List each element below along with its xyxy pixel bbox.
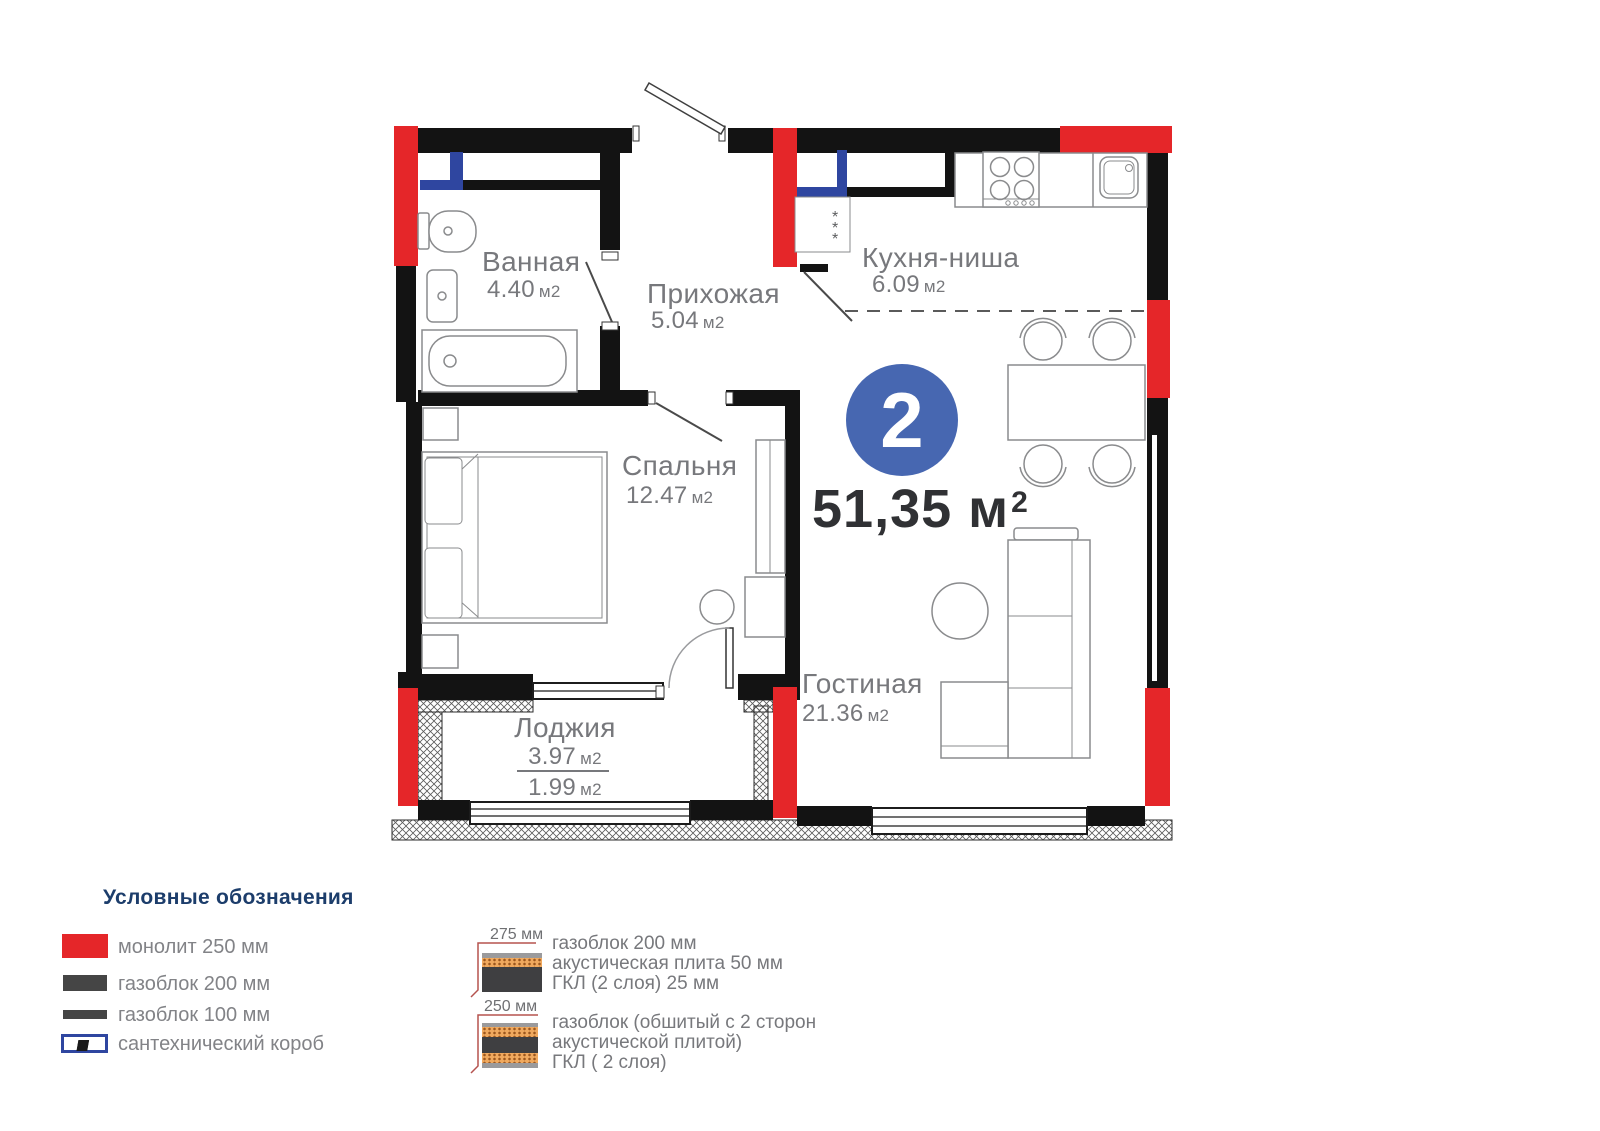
room-area-bedroom: 12.47м2: [626, 482, 713, 510]
wall-detail-1-text: газоблок 200 мм акустическая плита 50 мм…: [552, 934, 783, 994]
room-area-bathroom: 4.40м2: [487, 276, 561, 304]
corner-sofa-icon: [941, 528, 1090, 758]
total-area-value: 51,35: [812, 479, 952, 539]
legend-item-monolith: монолит 250 мм: [118, 936, 269, 959]
area-value: 4.40: [487, 276, 535, 303]
legend-title: Условные обозначения: [103, 886, 354, 910]
legend-swatch-gasblock-100: [63, 1010, 107, 1019]
total-area: 51,35 м2: [812, 478, 1029, 540]
fridge-marks: * * *: [832, 212, 838, 245]
wall-detail-line: газоблок 200 мм: [552, 934, 783, 954]
dining-set: [1008, 318, 1145, 486]
pouf: [700, 590, 734, 624]
loggia-door-leaf: [726, 628, 733, 688]
duct-shaft-niche: [845, 153, 945, 187]
entry-door-leaf: [645, 83, 725, 134]
rooms-count: 2: [880, 375, 923, 466]
layer-gasblock: [482, 1037, 538, 1053]
wall-detail-line: газоблок (обшитый с 2 сторон: [552, 1013, 816, 1033]
area-value: 6.09: [872, 271, 920, 298]
room-label-hallway: Прихожая: [647, 278, 780, 310]
kitchen-door-leaf: [804, 272, 852, 321]
legend-item-sanitary: сантехнический короб: [118, 1033, 324, 1056]
area-unit: м2: [580, 749, 602, 768]
legend-swatch-monolith: [62, 934, 108, 958]
wall-detail-2-text: газоблок (обшитый с 2 сторон акустическо…: [552, 1013, 816, 1073]
room-area-living: 21.36м2: [802, 700, 889, 728]
wall-detail-line: ГКЛ ( 2 слоя): [552, 1053, 816, 1073]
layer-gkl: [482, 1063, 538, 1068]
dresser: [745, 577, 785, 637]
area-unit: м2: [692, 488, 714, 507]
area-unit: м2: [580, 780, 602, 799]
room-area-kitchen: 6.09м2: [872, 271, 946, 299]
room-label-living: Гостиная: [802, 668, 923, 700]
wall-detail-2-swatch: [482, 1023, 538, 1068]
wall-detail-1-swatch: [482, 953, 542, 992]
wall-detail-line: акустическая плита 50 мм: [552, 954, 783, 974]
layer-gasblock: [482, 967, 542, 992]
room-label-kitchen: Кухня-ниша: [862, 242, 1019, 274]
fridge-icon: [795, 197, 850, 252]
area-unit: м2: [703, 313, 725, 332]
bedroom-door-leaf: [656, 403, 722, 441]
loggia-area-divider: [517, 770, 609, 772]
washbasin-icon: [427, 270, 457, 322]
dining-table: [1008, 365, 1145, 440]
rooms-count-badge: 2: [846, 364, 958, 476]
floorplan-drawing: [0, 0, 1600, 1131]
bathroom-door-leaf: [586, 262, 612, 322]
area-value: 5.04: [651, 307, 699, 334]
legend-swatch-gasblock-200: [63, 975, 107, 991]
room-area-loggia: 3.97м2: [500, 743, 630, 771]
coffee-table-icon: [932, 583, 988, 639]
fridge-star: *: [832, 234, 838, 245]
double-bed-icon: [422, 452, 607, 623]
stove-icon: [983, 152, 1039, 207]
layer-acoustic: [482, 1053, 538, 1063]
toilet-icon: [418, 211, 476, 252]
loggia-door-swing-arc: [669, 628, 730, 688]
area-unit: м2: [868, 706, 890, 725]
kitchen-sink-icon: [1100, 157, 1138, 198]
area-value: 12.47: [626, 482, 688, 509]
layer-acoustic: [482, 958, 542, 967]
sanitary-swatch-diagonal: [67, 1040, 105, 1051]
nightstand: [423, 408, 458, 440]
room-label-bathroom: Ванная: [482, 246, 580, 278]
room-area-loggia-reduced: 1.99м2: [500, 774, 630, 802]
floorplan-page: Ванная 4.40м2 Прихожая 5.04м2 Кухня-ниша…: [0, 0, 1600, 1131]
area-unit: м2: [924, 277, 946, 296]
area-unit: м2: [539, 282, 561, 301]
wall-detail-line: ГКЛ (2 слоя) 25 мм: [552, 974, 783, 994]
area-value: 3.97: [528, 743, 576, 770]
total-area-unit: м: [968, 479, 1009, 539]
legend-swatch-sanitary: [61, 1034, 108, 1053]
layer-acoustic: [482, 1027, 538, 1037]
living-furniture: [932, 528, 1090, 758]
bathtub-icon: [422, 330, 577, 392]
wall-detail-line: акустической плитой): [552, 1033, 816, 1053]
area-value: 1.99: [528, 774, 576, 801]
room-label-bedroom: Спальня: [622, 450, 737, 482]
area-value: 21.36: [802, 700, 864, 727]
room-area-hallway: 5.04м2: [651, 307, 725, 335]
room-label-loggia: Лоджия: [500, 712, 630, 744]
legend-item-gasblock-200: газоблок 200 мм: [118, 973, 270, 996]
total-area-exp: 2: [1011, 486, 1029, 519]
legend-item-gasblock-100: газоблок 100 мм: [118, 1004, 270, 1027]
wardrobe-icon: [756, 440, 785, 573]
stool: [422, 635, 458, 668]
